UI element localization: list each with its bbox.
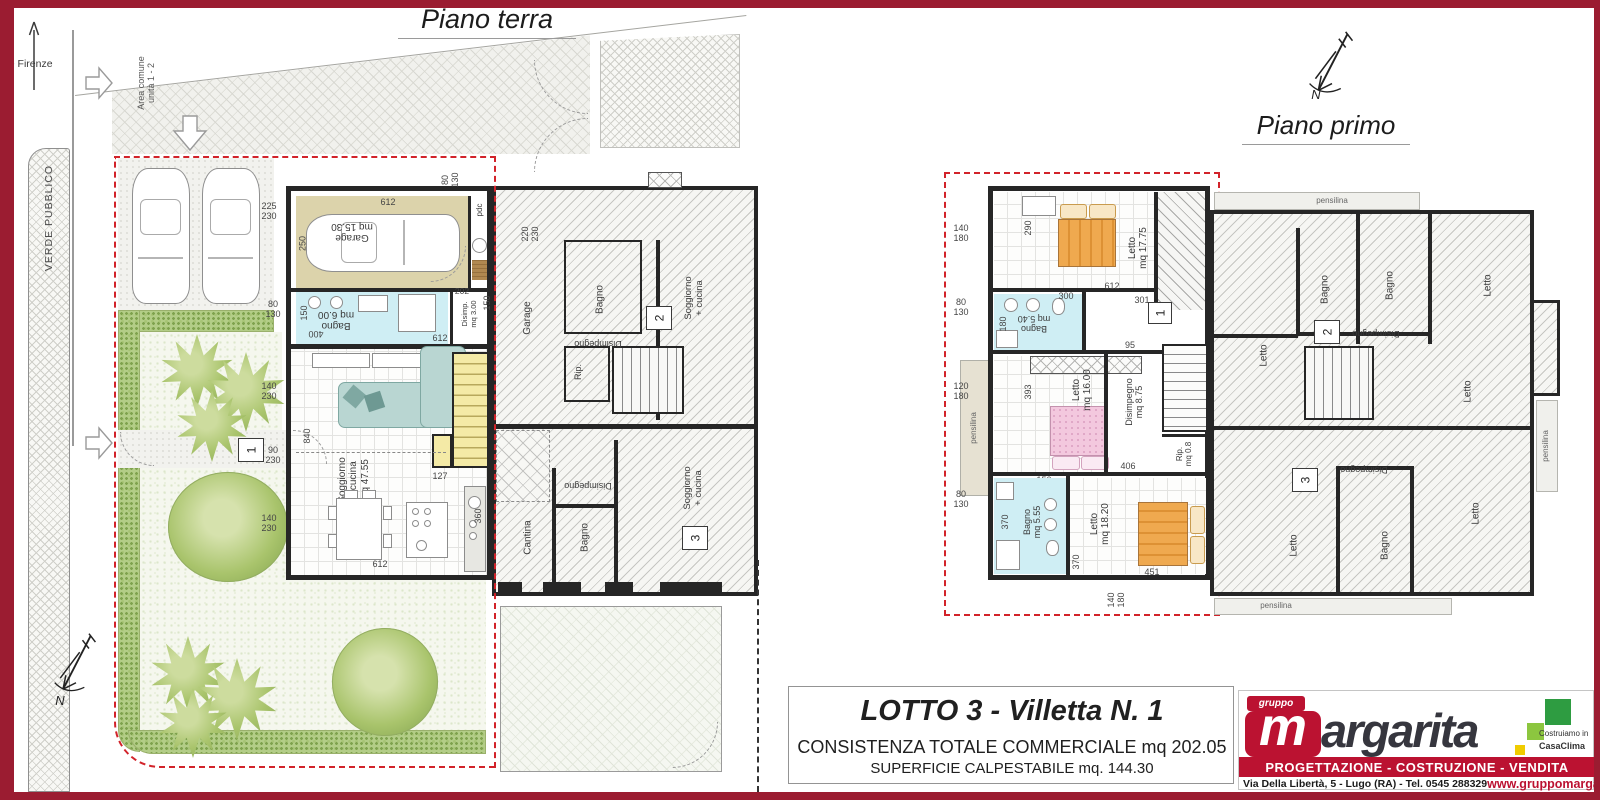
ff-n-bagno-b-label: Bagno bbox=[1384, 263, 1397, 309]
dim-250: 250 bbox=[298, 229, 309, 259]
car-hood-line bbox=[403, 220, 405, 265]
wall bbox=[1410, 470, 1414, 592]
doormat bbox=[472, 260, 487, 280]
wall bbox=[614, 440, 618, 592]
gf-n-disimpegno-label: Disimpegno bbox=[563, 337, 633, 350]
logo-block: gruppo m argarita Costruiamo in CasaClim… bbox=[1238, 690, 1594, 790]
ff-unit2-badge: 2 bbox=[1314, 320, 1340, 344]
cabinet bbox=[312, 353, 370, 368]
dim-150-disimp: 150 bbox=[482, 290, 492, 316]
company-address: Via Della Libertà, 5 - Lugo (RA) - Tel. … bbox=[1243, 778, 1487, 790]
ff-unit3-badge: 3 bbox=[1292, 468, 1318, 492]
gf-n-rip-label: Rip. bbox=[572, 357, 584, 387]
gf-n-stair-void bbox=[496, 430, 550, 502]
neighbor-courtyard bbox=[600, 34, 740, 148]
dim-612-bottom: 612 bbox=[365, 559, 395, 569]
gf-n-rip-room bbox=[564, 346, 610, 402]
logo-services-bar: PROGETTAZIONE - COSTRUZIONE - VENDITA bbox=[1239, 757, 1595, 777]
gf-n-soggiorno-label: Soggiorno + cucina bbox=[682, 266, 708, 330]
chair bbox=[328, 506, 337, 520]
unit2-badge: 2 bbox=[646, 306, 672, 330]
first-floor-title: Piano primo bbox=[1242, 110, 1410, 145]
ff-n-pensilina-top-label: pensilina bbox=[1302, 195, 1362, 207]
dim-90-230: 90 230 bbox=[258, 444, 288, 466]
wall bbox=[1212, 334, 1298, 338]
dim-127: 127 bbox=[425, 471, 455, 481]
gf-pdc-label: pdc bbox=[475, 197, 485, 223]
logo-gruppo-text: gruppo bbox=[1259, 698, 1293, 709]
logo-m-box: m bbox=[1245, 711, 1321, 757]
gf-garage-label: Garage mq 15.30 bbox=[322, 220, 382, 244]
dim-80-130-top: 80 130 bbox=[439, 165, 461, 195]
sheet-frame-top bbox=[0, 0, 1600, 8]
driveway-arrow-icon bbox=[170, 114, 210, 154]
logo-gruppo-box: gruppo bbox=[1247, 696, 1305, 711]
unit3-badge: 3 bbox=[682, 526, 708, 550]
ff-unit3-badge-digit: 3 bbox=[1298, 477, 1312, 484]
ff-n-extension bbox=[1534, 300, 1560, 396]
wall bbox=[492, 424, 758, 429]
facade-pillar bbox=[498, 582, 522, 596]
ff-n-letto-e-label: Letto bbox=[1470, 492, 1483, 536]
chair bbox=[383, 534, 392, 548]
company-website[interactable]: www.gruppomargarita.it bbox=[1487, 777, 1600, 791]
wall bbox=[468, 196, 471, 288]
gf-n-disimpegno2-label: Disimpegno bbox=[553, 479, 623, 492]
gf-stairs bbox=[452, 352, 489, 468]
wall bbox=[1336, 470, 1340, 592]
wall bbox=[1212, 426, 1532, 430]
dim-225-230: 225 230 bbox=[254, 200, 284, 222]
ff-n-stairs bbox=[1304, 346, 1374, 420]
dim-220-230: 220 230 bbox=[519, 217, 541, 251]
chimney-box bbox=[648, 172, 682, 188]
entrance-arrow-icon bbox=[84, 64, 114, 102]
unit3-badge-digit: 3 bbox=[688, 535, 702, 542]
logo-brand-text: argarita bbox=[1321, 703, 1477, 758]
sheet-frame-right bbox=[1594, 0, 1600, 800]
superficie-line: SUPERFICIE CALPESTABILE mq. 144.30 bbox=[789, 759, 1235, 779]
unit2-badge-digit: 2 bbox=[652, 315, 666, 322]
hob-burner-icon bbox=[424, 520, 431, 527]
lot-boundary-ff bbox=[944, 172, 1220, 616]
ff-n-letto-b-label: Letto bbox=[1258, 334, 1271, 378]
dim-202: 202 bbox=[449, 287, 475, 297]
gf-n-bagno2-label: Bagno bbox=[579, 513, 592, 563]
chair bbox=[383, 506, 392, 520]
boiler-icon bbox=[472, 238, 487, 253]
hob-burner-icon bbox=[412, 508, 419, 515]
wall bbox=[1428, 212, 1432, 344]
logo-m-glyph: m bbox=[1259, 711, 1307, 745]
north-letter: N bbox=[50, 694, 70, 708]
hob-burner-icon bbox=[424, 508, 431, 515]
wall bbox=[552, 504, 618, 508]
shower-icon bbox=[398, 294, 436, 332]
sheet-frame-left bbox=[0, 0, 14, 800]
ff-unit2-badge-digit: 2 bbox=[1320, 329, 1334, 336]
facade-pillar bbox=[660, 582, 722, 596]
casaclima-text2: CasaClima bbox=[1539, 741, 1593, 751]
dim-612-mid: 612 bbox=[425, 333, 455, 343]
gf-n-cantina-label: Cantina bbox=[522, 510, 535, 566]
sheet-frame-bottom bbox=[0, 792, 1600, 800]
wall bbox=[1356, 212, 1360, 344]
dim-140-230: 140 230 bbox=[254, 380, 284, 402]
ff-n-bagno-a-label: Bagno bbox=[1319, 267, 1332, 313]
logo-services-text: PROGETTAZIONE - COSTRUZIONE - VENDITA bbox=[1265, 760, 1568, 775]
ff-n-letto-d-label: Letto bbox=[1288, 524, 1301, 568]
casaclima-square-icon bbox=[1545, 699, 1571, 725]
facade-pillar bbox=[543, 582, 581, 596]
entrance-arrow-icon bbox=[84, 424, 114, 462]
dim-360: 360 bbox=[473, 501, 483, 531]
ff-n-letto-c-label: Letto bbox=[1462, 370, 1475, 414]
title-block: LOTTO 3 - Villetta N. 1 CONSISTENZA TOTA… bbox=[788, 686, 1234, 784]
lot-title: LOTTO 3 - Villetta N. 1 bbox=[789, 693, 1235, 731]
ff-n-bagno-c-label: Bagno bbox=[1379, 523, 1392, 569]
sink-icon bbox=[416, 540, 427, 551]
dim-612-garage: 612 bbox=[373, 197, 403, 208]
wall bbox=[1296, 228, 1300, 336]
ff-n-pensilina-right-label: pensilina bbox=[1540, 416, 1552, 476]
ff-n-disimpegno-a-label: Disimpegno bbox=[1340, 327, 1412, 340]
dim-150-bagno: 150 bbox=[299, 298, 309, 328]
common-area-label: Area comune unità 1 - 2 bbox=[133, 37, 159, 129]
gf-n-bagno-label: Bagno bbox=[594, 275, 607, 325]
casaclima-text1: Costruiamo in bbox=[1539, 729, 1593, 738]
north-letter: N bbox=[1306, 88, 1326, 102]
gf-stairs-landing bbox=[432, 434, 452, 468]
road-edge-line bbox=[72, 30, 74, 446]
gf-n-stairs bbox=[612, 346, 684, 414]
gf-n-soggiorno2-label: Soggiorno + cucina bbox=[681, 456, 707, 520]
street-direction-arrow-icon bbox=[26, 20, 42, 92]
chair bbox=[344, 490, 358, 499]
section-line bbox=[757, 560, 759, 792]
burner-icon bbox=[469, 532, 477, 540]
hob-burner-icon bbox=[412, 520, 419, 527]
ff-n-letto-a-label: Letto bbox=[1482, 264, 1495, 308]
consistenza-line: CONSISTENZA TOTALE COMMERCIALE mq 202.05 bbox=[789, 735, 1235, 759]
dining-table bbox=[336, 498, 382, 560]
drawing-sheet: Viale Firenze. VERDE PUBBLICO Area comun… bbox=[0, 0, 1600, 800]
casaclima-square-icon bbox=[1515, 745, 1525, 755]
dim-400: 400 bbox=[301, 329, 331, 339]
public-green-label: VERDE PUBBLICO bbox=[41, 148, 57, 288]
gf-n-garage-label: Garage bbox=[521, 286, 535, 350]
chair bbox=[328, 534, 337, 548]
dim-140-230: 140 230 bbox=[254, 512, 284, 534]
facade-pillar bbox=[605, 582, 633, 596]
dim-80-130: 80 130 bbox=[258, 298, 288, 320]
ff-n-pensilina-bottom-label: pensilina bbox=[1246, 600, 1306, 612]
chair bbox=[362, 490, 376, 499]
ff-n-disimpegno-b-label: Disimpegno bbox=[1328, 463, 1400, 476]
logo-footer-row: Via Della Libertà, 5 - Lugo (RA) - Tel. … bbox=[1239, 777, 1595, 791]
ground-floor-title: Piano terra bbox=[398, 4, 576, 39]
